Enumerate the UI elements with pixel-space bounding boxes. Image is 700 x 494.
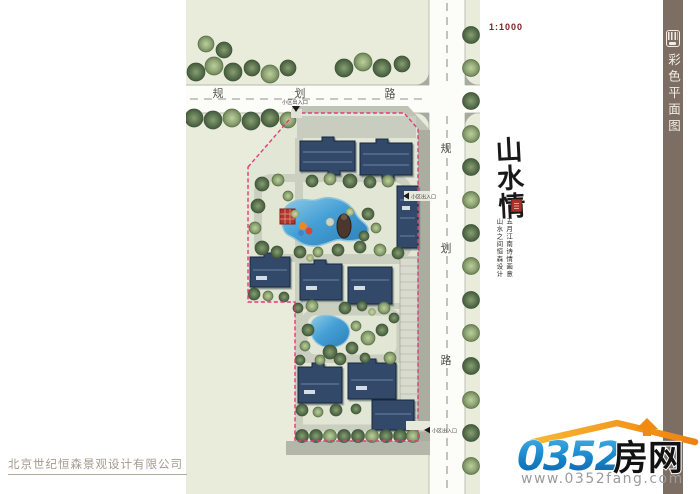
artwork-inscription: 五月江南诗情画意 山水之间恒森设计 <box>495 218 512 278</box>
page: 小区出入口 小区出入口 小区出入口 规 划 路 规 划 路 1:1000 山水情… <box>0 0 700 494</box>
svg-text:规: 规 <box>213 86 224 100</box>
svg-text:路: 路 <box>385 87 396 100</box>
site-plan: 小区出入口 小区出入口 小区出入口 规 划 路 规 划 路 <box>186 0 480 494</box>
sidebar-title: 彩色平面图 <box>663 53 683 136</box>
inscription-column: 山水之间恒森设计 <box>495 218 502 278</box>
building <box>300 137 355 175</box>
inscription-column: 五月江南诗情画意 <box>505 218 512 278</box>
entrance-label: 小区出入口 <box>432 427 457 434</box>
svg-text:划: 划 <box>295 87 306 100</box>
building <box>348 267 392 304</box>
svg-text:规: 规 <box>441 141 452 155</box>
company-name: 北京世纪恒森景观设计有限公司 <box>8 456 187 475</box>
building <box>298 363 342 403</box>
artwork-seal <box>511 199 522 212</box>
svg-text:路: 路 <box>441 354 452 367</box>
sculpture-feature <box>337 214 351 238</box>
building <box>348 359 396 399</box>
svg-text:划: 划 <box>441 242 452 255</box>
logo-url: www.0352fang.com <box>521 471 684 486</box>
plan-sheet-icon <box>666 30 680 47</box>
scale-label: 1:1000 <box>489 22 523 32</box>
watermark-logo: 0352 房网 www.0352fang.com <box>495 418 700 486</box>
entrance-label: 小区出入口 <box>411 193 436 200</box>
building <box>360 139 412 179</box>
